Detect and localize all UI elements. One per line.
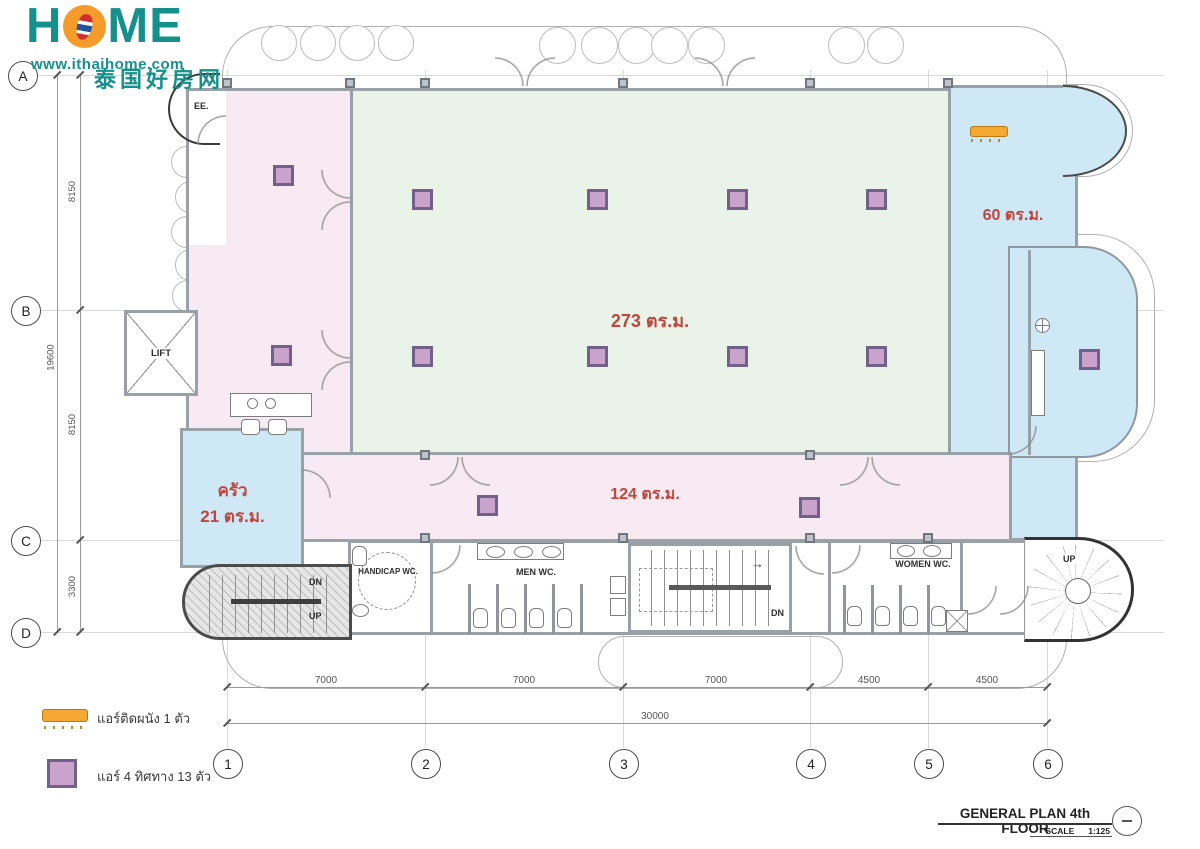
door-arc xyxy=(870,457,900,487)
legend-wall-ac-label: แอร์ติดผนัง 1 ตัว xyxy=(97,708,190,729)
floor-plan-canvas: LIFT DN UP HANDICAP WC. MEN WC. xyxy=(0,0,1200,849)
ac-4way-icon xyxy=(866,189,887,210)
stair-dn-label: DN xyxy=(309,577,322,587)
revision-dash xyxy=(1122,820,1132,822)
toilet-icon xyxy=(847,606,862,626)
grid-bubble-row-b: B xyxy=(11,296,41,326)
ac-4way-icon xyxy=(1079,349,1100,370)
spiral-hub xyxy=(1065,578,1091,604)
closet xyxy=(1031,350,1045,416)
door-arc xyxy=(695,56,725,86)
dim-left-seg-1: 8150 xyxy=(67,181,78,202)
sink-icon xyxy=(486,546,505,558)
urinal-icon xyxy=(610,598,626,616)
handicap-wc-label: HANDICAP WC. xyxy=(352,567,424,577)
toilet-icon xyxy=(473,608,488,628)
door-arc xyxy=(1000,586,1030,616)
stall-wall xyxy=(899,585,902,634)
stair-up-label: UP xyxy=(1061,554,1078,564)
chair xyxy=(268,419,287,435)
tree-icon xyxy=(339,25,375,61)
tree-icon xyxy=(867,27,904,64)
column-marker xyxy=(805,78,815,88)
stair-arrow: → xyxy=(751,556,764,571)
grid-bubble-col-4: 4 xyxy=(796,749,826,779)
logo-letter-h: H xyxy=(26,2,62,51)
sink-icon xyxy=(542,546,561,558)
logo: H ME xyxy=(26,2,183,51)
ac-4way-icon xyxy=(799,497,820,518)
door-arc xyxy=(840,457,870,487)
door-arc xyxy=(968,586,998,616)
toilet-icon xyxy=(529,608,544,628)
door-arc xyxy=(196,114,226,144)
grid-row-label: B xyxy=(21,304,30,319)
column-marker xyxy=(420,533,430,543)
door-arc xyxy=(725,56,755,86)
toilet-icon xyxy=(501,608,516,628)
door-arc xyxy=(302,468,332,498)
dim-bottom-total: 30000 xyxy=(625,711,685,722)
dim-bottom-seg-2: 7000 xyxy=(499,675,549,686)
ac-4way-icon xyxy=(587,346,608,367)
ac-wall-vents xyxy=(971,139,1007,142)
dim-line xyxy=(80,75,81,632)
dim-left-total: 19600 xyxy=(46,344,57,370)
men-wc-label: MEN WC. xyxy=(505,567,567,577)
ac-4way-icon xyxy=(727,346,748,367)
urinal-icon xyxy=(610,576,626,594)
legend-wall-ac-swatch xyxy=(42,709,88,722)
door-arc xyxy=(320,330,350,360)
door-arc xyxy=(432,545,462,575)
door-arc xyxy=(525,56,555,86)
stair-up-label: UP xyxy=(309,611,322,621)
column-marker xyxy=(420,78,430,88)
toilet-icon xyxy=(931,606,946,626)
ac-4way-icon xyxy=(271,345,292,366)
door-arc xyxy=(1008,426,1038,456)
dim-line xyxy=(227,723,1047,724)
stairwell-left: DN UP xyxy=(182,564,352,640)
title-scale-row: SCALE 1:125 xyxy=(1010,826,1110,836)
tree-icon xyxy=(378,25,414,61)
grid-bubble-col-2: 2 xyxy=(411,749,441,779)
stall-wall xyxy=(496,584,499,634)
column-marker xyxy=(618,533,628,543)
dim-bottom-seg-5: 4500 xyxy=(962,675,1012,686)
tree-icon xyxy=(651,27,688,64)
label-right-room-area: 60 ตร.ม. xyxy=(963,203,1063,228)
logo-tagline: 泰国好房网 xyxy=(94,62,224,94)
grid-col-label: 6 xyxy=(1044,757,1052,772)
stall-wall xyxy=(552,584,555,634)
tree-icon xyxy=(581,27,618,64)
tree-icon xyxy=(261,25,297,61)
door-arc xyxy=(495,56,525,86)
service-shaft xyxy=(946,610,968,632)
logo-o-circle-icon xyxy=(63,5,106,48)
door-arc xyxy=(832,545,862,575)
grid-col-label: 1 xyxy=(224,757,232,772)
column-marker xyxy=(420,450,430,460)
sink-icon xyxy=(514,546,533,558)
grid-bubble-col-6: 6 xyxy=(1033,749,1063,779)
label-kitchen-area: 21 ตร.ม. xyxy=(180,503,285,530)
legend-wall-ac-vents xyxy=(44,726,86,729)
dim-bottom-seg-3: 7000 xyxy=(691,675,741,686)
stair-spiral: UP xyxy=(1024,537,1134,642)
dim-bottom-seg-4: 4500 xyxy=(844,675,894,686)
stall-wall xyxy=(843,585,846,634)
desk-phone xyxy=(265,398,276,409)
grid-bubble-col-1: 1 xyxy=(213,749,243,779)
stair-handrail xyxy=(231,599,321,604)
stair-handrail xyxy=(669,585,771,590)
grid-bubble-row-c: C xyxy=(11,526,41,556)
chair xyxy=(241,419,260,435)
grid-bubble-row-d: D xyxy=(11,618,41,648)
grid-col-label: 4 xyxy=(807,757,815,772)
scale-label: SCALE xyxy=(1045,826,1074,836)
wall xyxy=(828,543,831,632)
grid-bubble-col-5: 5 xyxy=(914,749,944,779)
ac-4way-icon xyxy=(412,346,433,367)
ac-4way-icon xyxy=(273,165,294,186)
grid-col-label: 5 xyxy=(925,757,933,772)
grid-row-label: D xyxy=(21,626,31,641)
women-wc-label: WOMEN WC. xyxy=(885,559,961,569)
stair-dn-label: DN xyxy=(771,608,784,618)
tree-icon xyxy=(300,25,336,61)
grid-col-label: 2 xyxy=(422,757,430,772)
label-main-hall-area: 273 ตร.ม. xyxy=(575,306,725,335)
stall-wall xyxy=(927,585,930,634)
door-arc xyxy=(320,360,350,390)
dim-left-seg-3: 3300 xyxy=(67,576,78,597)
dim-line xyxy=(57,75,58,632)
door-arc xyxy=(430,457,460,487)
ac-4way-icon xyxy=(587,189,608,210)
column-marker xyxy=(805,450,815,460)
grid-row-label: C xyxy=(21,534,31,549)
toilet-icon xyxy=(903,606,918,626)
column-marker xyxy=(345,78,355,88)
tree-icon xyxy=(828,27,865,64)
label-kitchen-name: ครัว xyxy=(185,477,280,504)
sink-icon xyxy=(923,545,941,557)
stall-wall xyxy=(524,584,527,634)
title-underline-2 xyxy=(1030,836,1112,837)
door-arc xyxy=(794,546,824,576)
desk-phone xyxy=(247,398,258,409)
door-arc xyxy=(320,200,350,230)
column-marker xyxy=(805,533,815,543)
stall-wall xyxy=(468,584,471,634)
door-arc xyxy=(460,457,490,487)
ac-4way-icon xyxy=(727,189,748,210)
legend-4way-ac-label: แอร์ 4 ทิศทาง 13 ตัว xyxy=(97,766,211,787)
lift-shaft: LIFT xyxy=(124,310,198,396)
column-marker xyxy=(943,78,953,88)
legend-4way-ac-swatch xyxy=(47,759,77,788)
dim-bottom-seg-1: 7000 xyxy=(301,675,351,686)
title-underline xyxy=(938,823,1112,825)
column-marker xyxy=(618,78,628,88)
grid-row-label: A xyxy=(18,69,27,84)
stall-wall xyxy=(871,585,874,634)
logo-letters-me: ME xyxy=(107,2,183,51)
toilet-icon xyxy=(875,606,890,626)
scale-value: 1:125 xyxy=(1088,826,1110,836)
sink-icon xyxy=(897,545,915,557)
tree-icon xyxy=(618,27,655,64)
room-main-hall xyxy=(350,88,952,462)
lift-label: LIFT xyxy=(149,348,173,359)
ac-4way-icon xyxy=(866,346,887,367)
sink-icon xyxy=(352,604,369,617)
ee-label: EE. xyxy=(194,101,209,111)
thailand-map-icon xyxy=(75,12,94,40)
ac-4way-icon xyxy=(412,189,433,210)
stair-landing-dash xyxy=(639,568,713,612)
door-arc xyxy=(320,170,350,200)
ac-4way-icon xyxy=(477,495,498,516)
title-revision-circle xyxy=(1112,806,1142,836)
grid-bubble-col-3: 3 xyxy=(609,749,639,779)
grid-col-label: 3 xyxy=(620,757,628,772)
column-marker xyxy=(923,533,933,543)
ac-wall-icon xyxy=(970,126,1008,137)
toilet-icon xyxy=(352,546,367,566)
dim-left-seg-2: 8150 xyxy=(67,414,78,435)
fixture-symbol xyxy=(1035,318,1050,333)
stall-wall xyxy=(580,584,583,634)
label-bottom-hall-area: 124 ตร.ม. xyxy=(570,482,720,507)
stair-central: → DN xyxy=(628,543,792,633)
toilet-icon xyxy=(557,608,572,628)
